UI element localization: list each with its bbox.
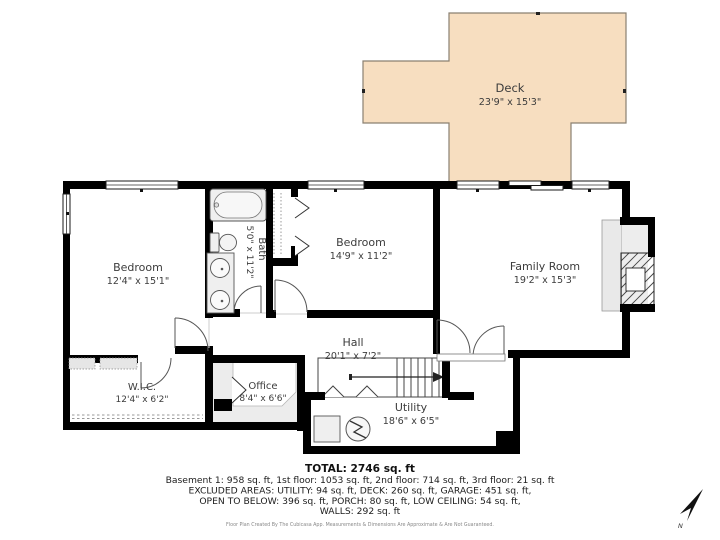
deck-dims: 23'9" x 15'3": [479, 97, 542, 108]
window-bedroom1: [106, 181, 178, 189]
window-tick: [476, 189, 479, 192]
wall-fireplace-right: [648, 221, 655, 257]
office-label: Office: [248, 381, 277, 392]
door-bath: [234, 286, 266, 313]
door-sill: [437, 354, 505, 361]
bath-dims: 5'0" x 11'2": [244, 226, 254, 279]
vanity-sinks: [207, 253, 234, 313]
staircase: [318, 358, 445, 397]
bedroom1-dims: 12'4" x 15'1": [107, 276, 170, 287]
disclaimer-text: Floor Plan Created By The Cubicasa App. …: [226, 522, 494, 528]
window-tick: [66, 212, 69, 215]
bedroom2-dims: 14'9" x 11'2": [330, 251, 393, 262]
wall-office-stub: [214, 399, 232, 411]
wall-utility-corner-block: [496, 431, 520, 449]
north-label: N: [678, 522, 683, 530]
water-heater: [346, 417, 370, 441]
north-arrow-icon: [680, 489, 703, 521]
bedroom2-label: Bedroom: [336, 236, 386, 249]
wic-label: W.I.C.: [128, 382, 156, 393]
deck-tick-top: [536, 12, 540, 15]
door-family-right: [473, 326, 504, 357]
window-bedroom2: [308, 181, 364, 189]
office-low-ceiling-shading: [213, 362, 298, 422]
utility-dims: 18'6" x 6'5": [383, 416, 439, 427]
compass: N: [678, 489, 703, 530]
wic-shelf: [100, 358, 137, 369]
utility-label: Utility: [395, 401, 428, 414]
furnace: [314, 416, 340, 442]
wall-office-top: [205, 355, 305, 363]
wic-shelf: [69, 358, 95, 369]
wall-closet-stub-top: [291, 181, 298, 197]
family-room-label: Family Room: [510, 260, 580, 273]
floor-plan-page: Deck 23'9" x 15'3" Bedroom 12'4" x 15'1"…: [0, 0, 720, 540]
summary-excluded-1: EXCLUDED AREAS: UTILITY: 94 sq. ft, DECK…: [189, 486, 532, 497]
summary-walls: WALLS: 292 sq. ft: [320, 506, 401, 517]
window-tick: [588, 189, 591, 192]
summary-total: TOTAL: 2746 sq. ft: [305, 463, 415, 475]
door-family-left: [437, 320, 470, 353]
wall-family-bottom: [508, 350, 630, 358]
deck-label: Deck: [496, 81, 525, 95]
wall-bedroom2-bottom-right: [307, 310, 440, 318]
hall-dims: 20'1" x 7'2": [325, 351, 381, 362]
door-bedroom2: [275, 280, 307, 314]
summary-floors: Basement 1: 958 sq. ft, 1st floor: 1053 …: [166, 475, 555, 486]
wic-dims: 12'4" x 6'2": [116, 395, 169, 405]
area-summary: TOTAL: 2746 sq. ft Basement 1: 958 sq. f…: [166, 463, 555, 528]
toilet: [210, 233, 237, 252]
bedroom1-label: Bedroom: [113, 261, 163, 274]
firebox: [626, 268, 645, 291]
wall-family-right-lower: [622, 310, 630, 354]
bath-label: Bath: [256, 237, 267, 260]
wall-bottom-left: [63, 422, 311, 430]
deck-tick-left: [362, 89, 365, 93]
wall-utility-left: [303, 399, 311, 454]
utility-fixtures: [314, 416, 370, 442]
bifold-closet-doors: [295, 198, 309, 256]
wall-utility-bottom: [303, 446, 520, 454]
floor-plan-canvas: Deck 23'9" x 15'3" Bedroom 12'4" x 15'1"…: [0, 0, 720, 540]
wall-landing-stub: [448, 392, 474, 400]
walls: [63, 181, 655, 454]
window-family-left: [457, 181, 499, 189]
hearth-slab: [602, 220, 622, 311]
family-room-dims: 19'2" x 15'3": [514, 275, 577, 286]
hall-label: Hall: [342, 336, 363, 349]
deck-tick-right: [623, 89, 626, 93]
wall-family-right-upper: [622, 181, 630, 221]
bathtub: [210, 189, 266, 221]
wall-hall-utility: [297, 392, 325, 400]
wall-fireplace-bottom: [620, 304, 655, 312]
window-tick: [140, 189, 143, 192]
window-family-right: [572, 181, 609, 189]
office-dims: 8'4" x 6'6": [239, 394, 286, 404]
window-tick: [334, 189, 337, 192]
fireplace: [602, 220, 654, 311]
